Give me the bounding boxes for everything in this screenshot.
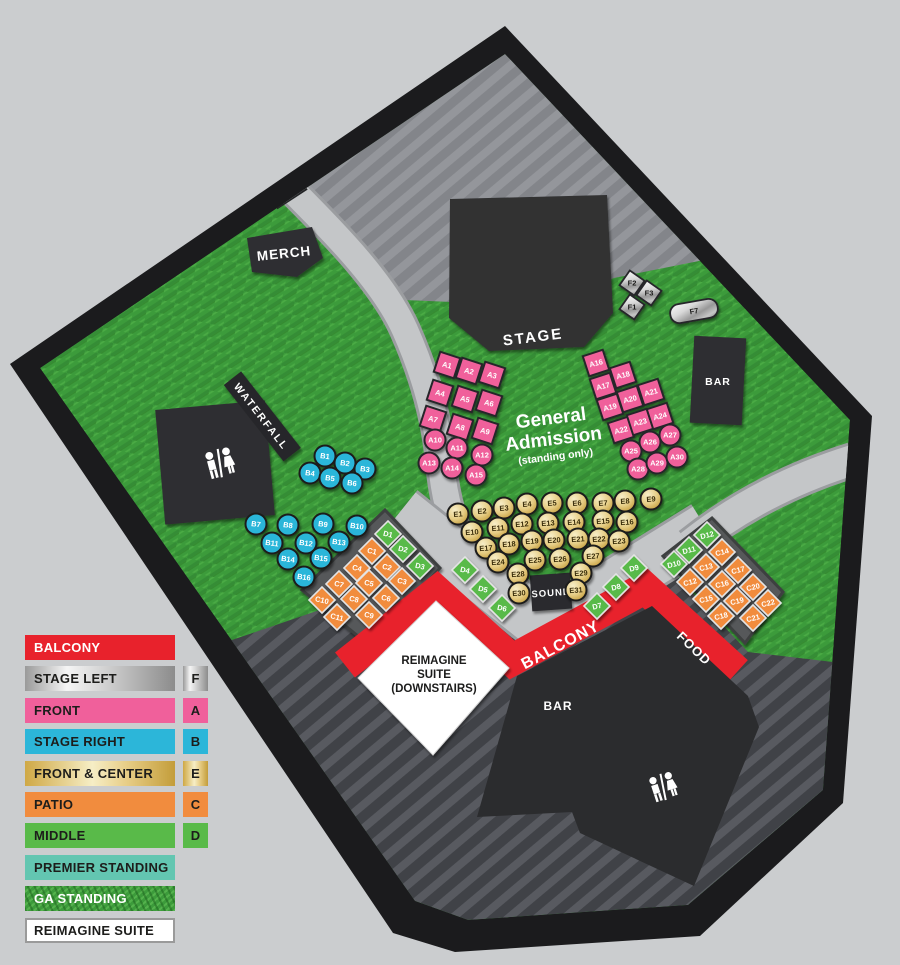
table-b6[interactable]: B6 xyxy=(342,473,363,494)
table-label: E20 xyxy=(547,535,561,545)
table-label: A12 xyxy=(475,451,489,460)
table-label: A11 xyxy=(450,444,463,453)
table-label: B13 xyxy=(332,537,347,548)
table-a26[interactable]: A26 xyxy=(640,432,661,453)
table-label: E30 xyxy=(512,588,526,598)
table-label: A28 xyxy=(631,465,645,474)
table-label: A30 xyxy=(670,453,684,462)
table-label: F1 xyxy=(628,303,637,312)
table-e26[interactable]: E26 xyxy=(550,549,571,570)
table-b11[interactable]: B11 xyxy=(262,533,283,554)
table-a29[interactable]: A29 xyxy=(647,453,668,474)
table-e1[interactable]: E1 xyxy=(448,504,469,525)
table-e30[interactable]: E30 xyxy=(509,583,530,604)
table-label: A26 xyxy=(643,438,657,447)
table-label: E19 xyxy=(525,536,539,546)
table-label: B3 xyxy=(360,464,371,474)
table-label: B9 xyxy=(318,519,329,529)
table-label: E22 xyxy=(592,534,606,544)
table-e2[interactable]: E2 xyxy=(472,501,493,522)
table-b16[interactable]: B16 xyxy=(294,567,315,588)
table-e28[interactable]: E28 xyxy=(508,564,529,585)
table-label: A14 xyxy=(445,464,460,473)
table-label: E10 xyxy=(465,527,479,537)
table-e16[interactable]: E16 xyxy=(617,512,638,533)
table-label: B6 xyxy=(347,478,358,488)
venue-map: MERCH STAGE WATERFALL BAR REIMAGINE SUIT… xyxy=(0,0,900,965)
table-label: E12 xyxy=(515,519,529,529)
table-a12[interactable]: A12 xyxy=(472,445,493,466)
table-label: E6 xyxy=(572,498,582,508)
table-label: F3 xyxy=(645,289,654,298)
table-label: B11 xyxy=(265,538,279,549)
table-e20[interactable]: E20 xyxy=(544,530,565,551)
table-e4[interactable]: E4 xyxy=(517,494,538,515)
table-e5[interactable]: E5 xyxy=(542,493,563,514)
table-label: B16 xyxy=(297,572,312,583)
table-e6[interactable]: E6 xyxy=(567,493,588,514)
table-label: A10 xyxy=(428,436,442,445)
table-label: B10 xyxy=(350,521,365,532)
table-a11[interactable]: A11 xyxy=(447,438,468,459)
table-label: E29 xyxy=(574,568,588,578)
table-label: E2 xyxy=(477,506,487,516)
table-label: B1 xyxy=(320,451,331,461)
stage: STAGE xyxy=(449,195,613,351)
table-b13[interactable]: B13 xyxy=(329,532,350,553)
table-label: B7 xyxy=(251,519,262,529)
table-label: E1 xyxy=(453,509,463,519)
table-b10[interactable]: B10 xyxy=(347,516,368,537)
table-a28[interactable]: A28 xyxy=(628,459,649,480)
table-b5[interactable]: B5 xyxy=(320,468,341,489)
table-b15[interactable]: B15 xyxy=(311,548,332,569)
table-label: E4 xyxy=(522,499,533,509)
table-label: E31 xyxy=(569,585,583,595)
table-b7[interactable]: B7 xyxy=(246,514,267,535)
table-label: A25 xyxy=(624,447,638,456)
table-label: E5 xyxy=(547,498,557,508)
table-label: E8 xyxy=(620,496,630,506)
suite-label-2: SUITE xyxy=(417,669,451,681)
table-b14[interactable]: B14 xyxy=(278,549,299,570)
table-label: E7 xyxy=(598,498,608,508)
table-label: E9 xyxy=(646,494,656,504)
table-label: E24 xyxy=(491,557,506,567)
table-e9[interactable]: E9 xyxy=(641,489,662,510)
table-label: E17 xyxy=(479,543,493,553)
bar-main-label: BAR xyxy=(544,699,573,713)
table-label: E18 xyxy=(502,539,516,549)
table-a13[interactable]: A13 xyxy=(419,453,440,474)
table-e31[interactable]: E31 xyxy=(566,580,587,601)
table-label: A15 xyxy=(469,471,483,480)
table-b1[interactable]: B1 xyxy=(315,446,336,467)
table-label: E15 xyxy=(596,516,610,526)
table-e3[interactable]: E3 xyxy=(494,498,515,519)
suite-label-3: (DOWNSTAIRS) xyxy=(391,683,477,695)
table-e25[interactable]: E25 xyxy=(525,550,546,571)
table-label: E3 xyxy=(499,503,509,513)
table-a14[interactable]: A14 xyxy=(442,458,463,479)
venue-map-svg: MERCH STAGE WATERFALL BAR REIMAGINE SUIT… xyxy=(0,0,900,965)
table-label: E26 xyxy=(553,554,567,564)
table-a15[interactable]: A15 xyxy=(466,465,487,486)
table-e19[interactable]: E19 xyxy=(522,531,543,552)
bar-stage-label: BAR xyxy=(705,376,731,388)
table-label: E13 xyxy=(541,518,555,528)
table-a30[interactable]: A30 xyxy=(667,447,688,468)
table-label: B5 xyxy=(325,473,336,483)
table-b9[interactable]: B9 xyxy=(313,514,334,535)
table-label: E25 xyxy=(528,555,542,565)
table-label: A27 xyxy=(663,431,677,440)
table-e21[interactable]: E21 xyxy=(568,529,589,550)
table-a10[interactable]: A10 xyxy=(425,430,446,451)
table-label: E27 xyxy=(586,551,600,561)
table-label: B2 xyxy=(340,458,351,468)
table-label: A13 xyxy=(422,459,436,468)
table-e23[interactable]: E23 xyxy=(609,531,630,552)
table-label: A29 xyxy=(650,459,664,468)
table-e8[interactable]: E8 xyxy=(615,491,636,512)
table-label: E23 xyxy=(612,536,626,546)
table-label: B8 xyxy=(283,520,294,530)
table-label: F2 xyxy=(628,279,637,288)
table-label: E14 xyxy=(567,517,582,527)
table-label: E28 xyxy=(511,569,525,579)
table-label: B15 xyxy=(314,553,329,564)
table-label: E16 xyxy=(620,517,634,527)
table-b4[interactable]: B4 xyxy=(300,463,321,484)
bar-stage-right: BAR xyxy=(690,336,746,426)
table-label: E11 xyxy=(491,523,505,533)
table-label: B12 xyxy=(299,538,314,549)
table-a27[interactable]: A27 xyxy=(660,425,681,446)
table-b8[interactable]: B8 xyxy=(278,515,299,536)
table-e24[interactable]: E24 xyxy=(488,552,509,573)
table-label: F7 xyxy=(689,306,699,316)
suite-label-1: REIMAGINE xyxy=(401,655,467,667)
table-label: E21 xyxy=(571,534,585,544)
